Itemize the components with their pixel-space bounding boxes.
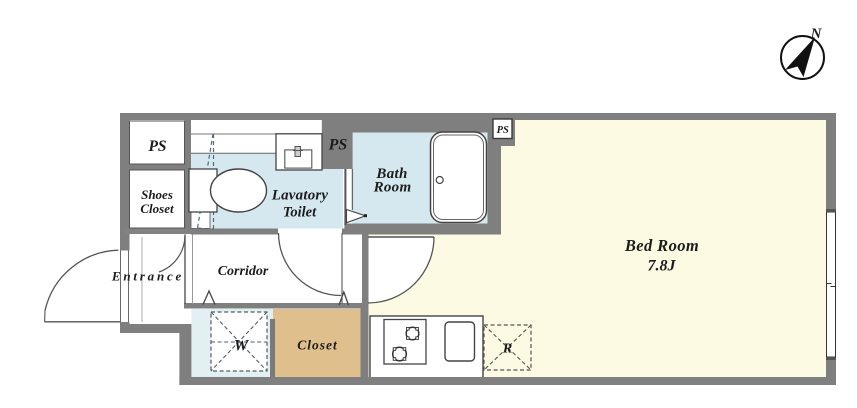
svg-text:Toilet: Toilet — [283, 205, 317, 221]
svg-text:N: N — [810, 26, 823, 42]
svg-text:Bed Room: Bed Room — [624, 236, 699, 255]
svg-text:PS: PS — [497, 125, 509, 136]
svg-text:Lavatory: Lavatory — [271, 188, 329, 204]
svg-text:Closet: Closet — [140, 201, 174, 216]
svg-text:W: W — [234, 338, 250, 355]
svg-text:Entrance: Entrance — [111, 269, 184, 284]
svg-text:Closet: Closet — [297, 338, 338, 353]
svg-text:Room: Room — [373, 180, 412, 196]
svg-text:R: R — [502, 342, 512, 357]
svg-text:7.8J: 7.8J — [648, 258, 677, 275]
svg-text:Corridor: Corridor — [218, 264, 269, 279]
svg-text:Shoes: Shoes — [141, 187, 173, 202]
svg-text:PS: PS — [328, 137, 348, 154]
svg-text:PS: PS — [148, 138, 166, 155]
